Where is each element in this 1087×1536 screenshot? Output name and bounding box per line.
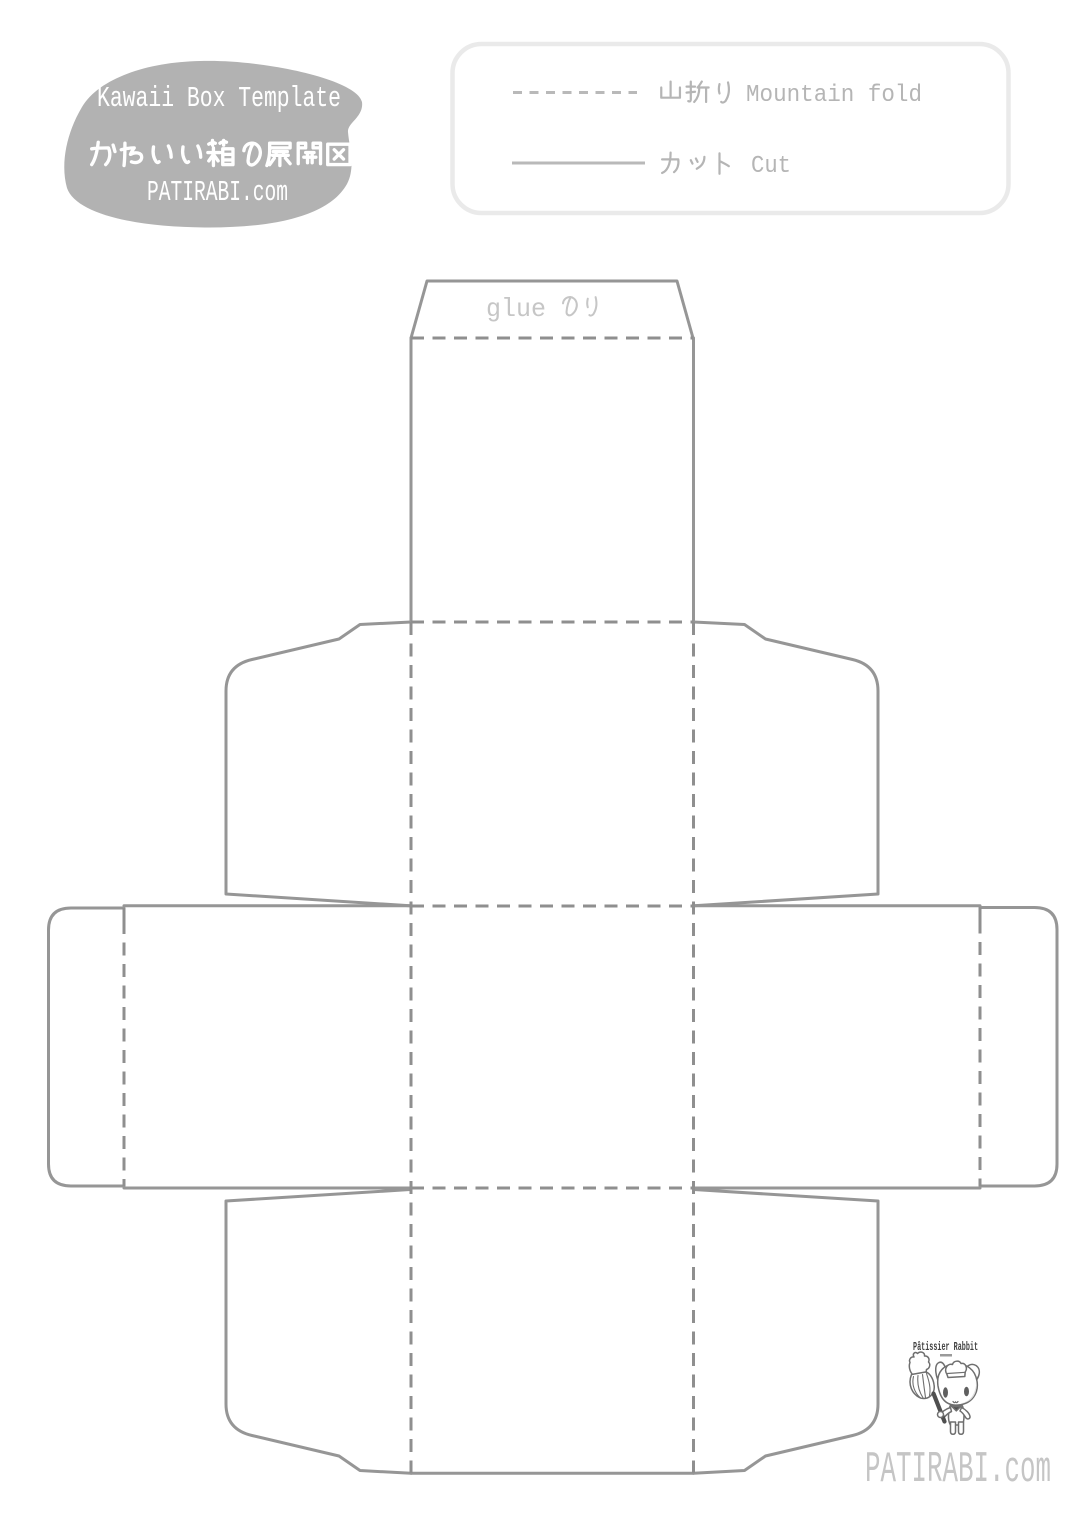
svg-text:Mountain fold: Mountain fold [746, 82, 922, 109]
svg-text:PATIRABI.com: PATIRABI.com [147, 176, 288, 209]
svg-text:Cut: Cut [751, 153, 791, 180]
svg-text:Kawaii Box Template: Kawaii Box Template [97, 82, 341, 115]
svg-text:glue: glue [486, 294, 546, 324]
svg-text:PATIRABI.com: PATIRABI.com [865, 1445, 1051, 1495]
